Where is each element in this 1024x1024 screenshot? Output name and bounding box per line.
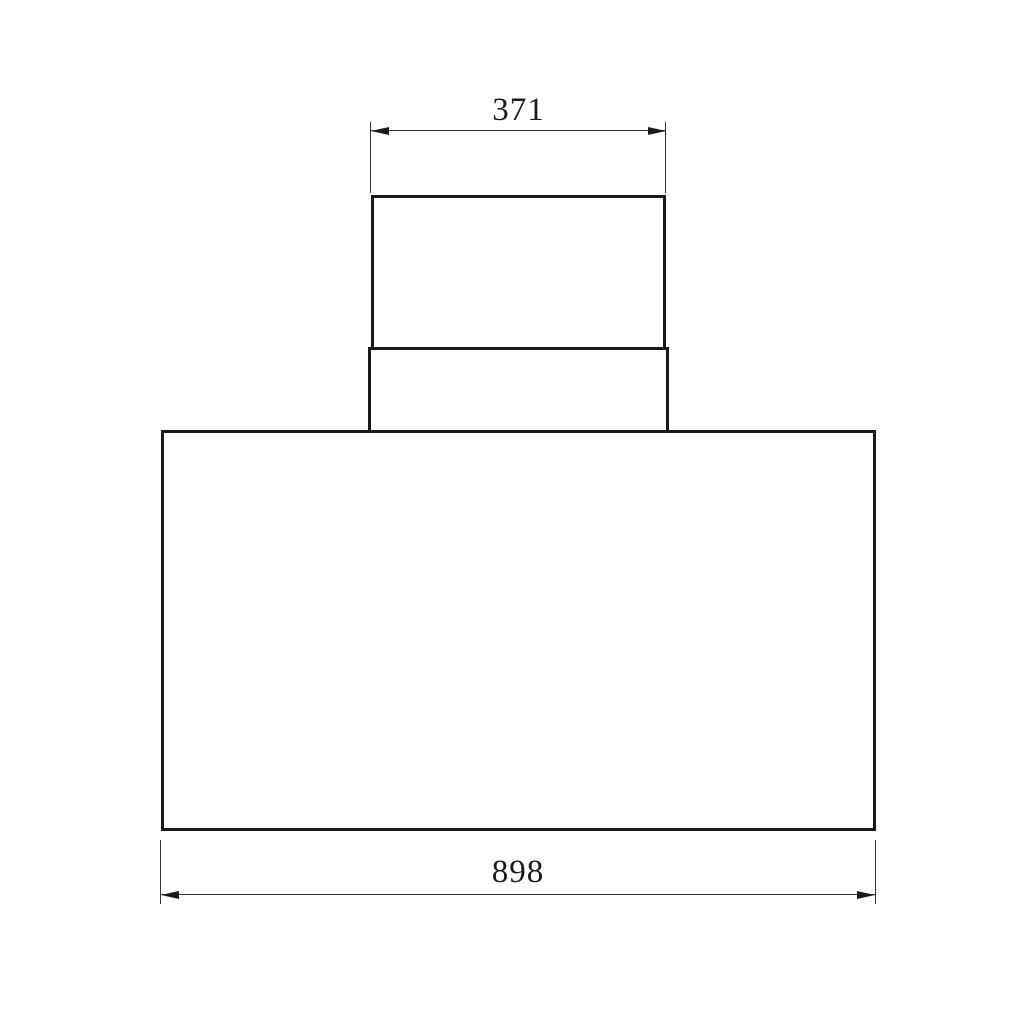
hood-body-rect bbox=[161, 430, 876, 831]
arrowhead-left-icon bbox=[161, 891, 179, 899]
dimension-line bbox=[161, 894, 875, 895]
arrowhead-right-icon bbox=[857, 891, 875, 899]
dimension-label-top: 371 bbox=[371, 94, 666, 127]
arrowhead-left-icon bbox=[371, 127, 389, 135]
technical-drawing-canvas: 371 898 bbox=[0, 0, 1024, 1024]
extension-line-right bbox=[875, 840, 876, 904]
duct-upper-rect bbox=[371, 195, 666, 350]
dimension-line bbox=[371, 130, 666, 131]
arrowhead-right-icon bbox=[648, 127, 666, 135]
duct-collar-rect bbox=[368, 347, 669, 433]
dimension-label-bottom: 898 bbox=[161, 856, 875, 889]
